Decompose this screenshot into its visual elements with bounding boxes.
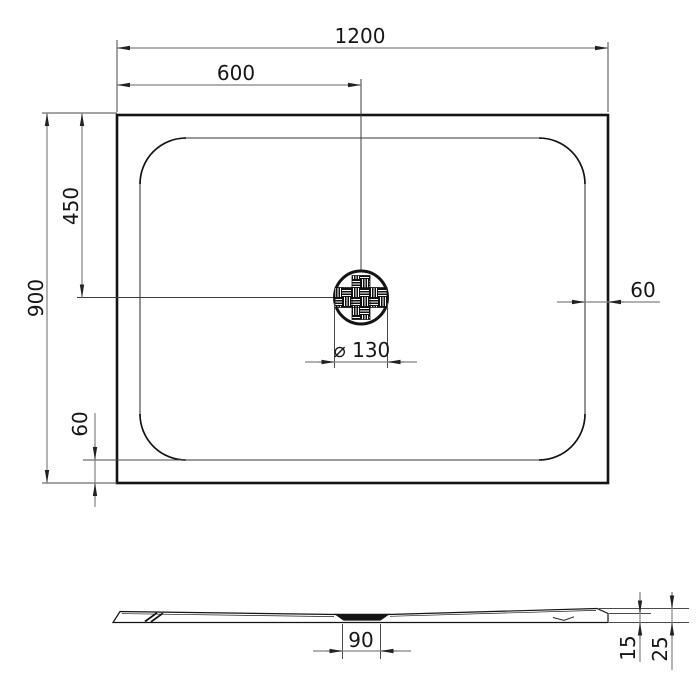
dimension-rim-bottom: 60 [68, 411, 95, 507]
dim-total-height-label: 25 [648, 636, 672, 661]
shower-tray-drawing: 1200 600 900 450 60 60 [0, 0, 699, 699]
dimension-drain-offset-y: 450 [59, 113, 83, 298]
technical-drawing-page: 1200 600 900 450 60 60 [0, 0, 699, 699]
dim-height-total-label: 900 [24, 279, 48, 317]
dimension-edge-height: 15 [616, 592, 640, 662]
side-section-view: 90 15 25 [113, 592, 689, 670]
dimension-height-total: 900 [24, 113, 48, 483]
dim-drain-diameter-label: ⌀ 130 [334, 338, 391, 362]
dim-drain-offset-x-label: 600 [217, 61, 255, 85]
dim-rim-right-label: 60 [630, 278, 655, 302]
dim-drain-offset-y-label: 450 [59, 187, 83, 225]
dim-drain-recess-width-label: 90 [348, 628, 373, 652]
section-right-detail [553, 617, 574, 621]
dimension-drain-offset-x: 600 [117, 61, 361, 85]
drain-recess-section [334, 614, 390, 621]
dim-edge-height-label: 15 [616, 635, 640, 660]
drain-grate-cross [335, 276, 387, 320]
dim-rim-bottom-label: 60 [68, 411, 92, 436]
dimension-drain-recess-width: 90 [313, 624, 411, 659]
dimension-total-height: 25 [648, 592, 672, 670]
dim-width-total-label: 1200 [335, 24, 386, 48]
dimension-width-total: 1200 [117, 24, 608, 48]
drain [335, 271, 388, 324]
top-view: 1200 600 900 450 60 60 [24, 24, 660, 507]
